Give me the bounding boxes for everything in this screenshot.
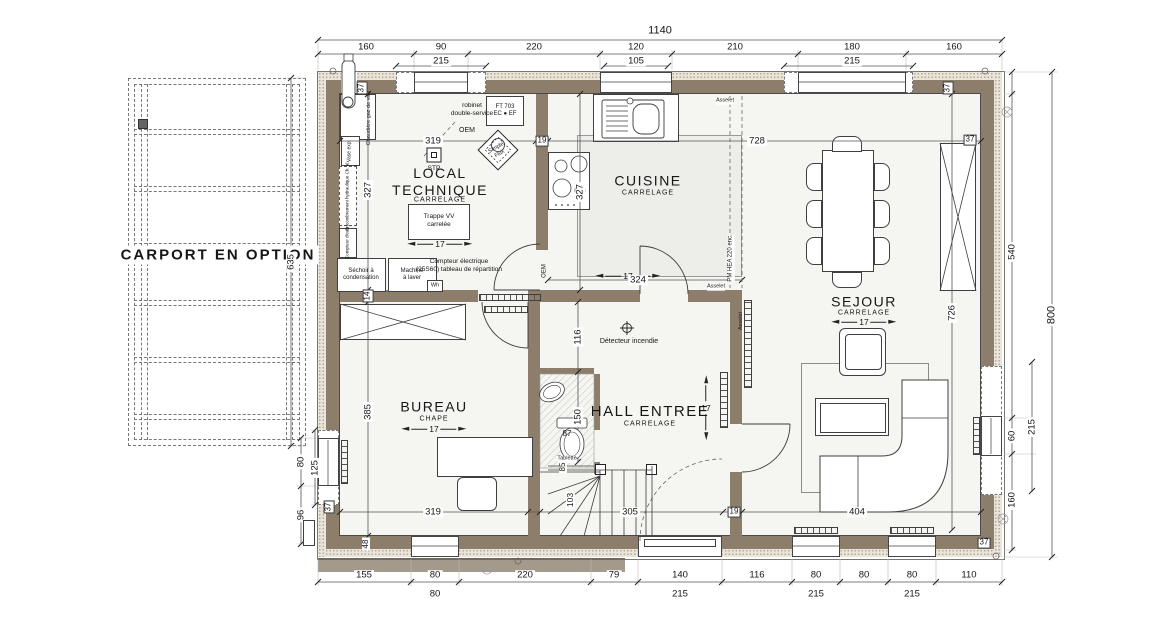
dining-chair — [832, 272, 862, 288]
arrow-left-icon — [407, 242, 415, 246]
room-finish-hall: CARRELAGE — [624, 421, 676, 428]
carport-beam — [134, 300, 300, 306]
dim-wall-37: 37 — [964, 135, 977, 146]
room-label-cuisine: CUISINE — [614, 173, 681, 190]
dim-top: 210 — [725, 42, 745, 52]
dim-interior: 103 — [566, 491, 575, 509]
dim-wall-37: 37 — [943, 82, 954, 95]
room-finish-bureau: CHAPE — [419, 416, 448, 423]
wardrobe — [340, 304, 466, 340]
dim-top: 220 — [524, 42, 544, 52]
dining-chair — [806, 237, 822, 265]
floor-plan: LOCAL TECHNIQUE CARRELAGE CUISINE CARREL… — [0, 0, 1160, 635]
room-finish-sejour: CARRELAGE — [838, 310, 890, 317]
window-right-sejour — [981, 416, 1002, 456]
kitchen-counter — [593, 94, 679, 142]
dim-top: 180 — [842, 42, 862, 52]
dim-interior: 404 — [847, 507, 867, 517]
arrow-right-icon — [653, 274, 661, 278]
dim-bottom: 220 — [515, 570, 535, 580]
arrow-left-icon — [704, 375, 708, 383]
dim-wall-37: 37 — [357, 82, 368, 95]
label-sechoir: Séchoir à condensation — [343, 268, 379, 282]
dim-interior: 87 — [561, 430, 574, 438]
window-left-bureau — [318, 438, 339, 486]
room-label-sejour: SEJOUR — [831, 294, 897, 311]
dim-wall-37: 37 — [978, 538, 991, 549]
armchair-inner — [845, 334, 882, 370]
dim-bottom: 80 — [857, 570, 872, 580]
radiator-sejour-wall — [744, 300, 752, 388]
label-oem-1: OEM — [459, 127, 475, 135]
window-bottom-2 — [888, 536, 936, 557]
dim-right-total: 800 — [1047, 304, 1058, 326]
dim-right: 215 — [1027, 417, 1037, 437]
room-label-bureau: BUREAU — [400, 399, 467, 416]
dim-top: 90 — [434, 42, 449, 52]
dim-bottom: 116 — [747, 570, 766, 580]
dim-interior: 319 — [423, 507, 443, 517]
dining-chair — [874, 200, 890, 228]
radiator-hall-wall — [720, 372, 728, 428]
level-marker-sejour: 17 — [831, 318, 896, 327]
kitchen-zone — [577, 135, 742, 277]
stair-post — [595, 464, 606, 475]
arrow-right-icon — [465, 242, 473, 246]
dim-interior: 305 — [620, 507, 640, 517]
dim-bottom-lintel: 215 — [670, 589, 690, 599]
dim-bottom-lintel: 215 — [902, 589, 922, 599]
stair-post — [646, 464, 657, 475]
dim-total-width: 1140 — [646, 26, 674, 37]
window-top-1 — [414, 72, 468, 93]
wall-local-cuisine — [536, 94, 548, 250]
wall-mid-2 — [528, 290, 640, 302]
label-robinet: robinet double-service — [451, 102, 493, 118]
dim-left: 80 — [296, 455, 306, 470]
dim-bottom: 155 — [354, 570, 374, 580]
dim-interior: 728 — [747, 136, 767, 146]
dim-interior: 324 — [628, 275, 648, 285]
dim-top: 120 — [626, 42, 646, 52]
dim-top-lintel: 215 — [842, 56, 862, 66]
radiator-local — [479, 294, 541, 301]
level-value: 17 — [429, 425, 438, 434]
carport-beam — [134, 414, 300, 420]
window-top-sejour — [798, 72, 906, 93]
dim-right: 160 — [1007, 490, 1017, 510]
dining-chair — [832, 136, 862, 152]
dim-bottom: 80 — [809, 570, 824, 580]
wall-mid-3 — [688, 290, 742, 302]
dim-carport-height: 635 — [286, 252, 296, 272]
dim-interior: 150 — [573, 407, 583, 427]
room-finish-local: CARRELAGE — [414, 197, 466, 204]
dim-interior: 327 — [363, 180, 373, 200]
dim-top: 160 — [944, 42, 964, 52]
window-top-kitchen — [600, 72, 672, 93]
label-trappe: Trappe VV carrelée — [424, 213, 455, 229]
level-marker-hall: 17 — [702, 375, 711, 440]
arrow-left-icon — [401, 427, 409, 431]
exterior-tag-box — [303, 520, 315, 546]
radiator-sejour-window — [973, 417, 980, 455]
wall-hall-sejour-b — [730, 472, 742, 536]
dim-bottom: 110 — [959, 570, 978, 580]
dim-left: 48 — [362, 538, 370, 551]
radiator-window-b2 — [890, 527, 934, 534]
level-value: 17 — [859, 318, 868, 327]
dining-chair — [806, 163, 822, 191]
dim-wall-37: 37 — [324, 501, 335, 514]
dim-bottom: 80 — [905, 570, 920, 580]
desk-chair — [457, 477, 497, 511]
dim-bottom-lintel: 80 — [428, 589, 443, 599]
chimney-box — [940, 143, 976, 291]
dining-table — [822, 150, 874, 272]
dim-bottom: 79 — [607, 570, 622, 580]
wall-bureau-hall — [528, 302, 540, 536]
label-compteur-eau: Compteur d'eau — [346, 227, 351, 259]
label-pm-hea: PM HEA 220 enc. — [728, 234, 735, 281]
dim-wall-14: 14 — [363, 290, 374, 303]
entrance-door-leaf — [644, 539, 716, 547]
level-value: 17 — [435, 240, 444, 249]
dim-right: 540 — [1007, 242, 1017, 262]
level-marker-bureau: 17 — [401, 425, 466, 434]
label-ft703: FT 703 EC ● EF — [494, 104, 517, 118]
dim-interior: 327 — [575, 182, 585, 202]
coffee-table-inner — [820, 403, 886, 433]
carport-beam — [134, 129, 300, 135]
dim-left: 125 — [310, 458, 320, 478]
label-chaudiere: Chaudière gaz de ville — [366, 91, 372, 145]
dim-top-lintel: 105 — [626, 56, 646, 66]
label-oem-2: OEM — [542, 264, 549, 278]
level-marker-local: 17 — [407, 240, 472, 249]
carport-beam — [134, 357, 300, 363]
wall-wc-top — [540, 368, 594, 374]
dim-sejour-height: 726 — [947, 303, 957, 323]
window-bottom-1 — [792, 536, 840, 557]
radiator-bureau — [484, 306, 528, 313]
dim-bottom-lintel: 215 — [806, 589, 826, 599]
dim-wall-19: 19 — [536, 136, 549, 147]
wall-wc-right-a — [594, 374, 600, 430]
door-bottom-bureau — [411, 536, 459, 557]
dim-top-lintel: 215 — [431, 56, 451, 66]
radiator-window-b1 — [794, 527, 838, 534]
dining-chair — [874, 237, 890, 265]
flue-opening — [341, 72, 357, 93]
dim-right: 60 — [1007, 429, 1017, 444]
dim-bottom: 140 — [670, 570, 690, 580]
dim-top: 160 — [356, 42, 376, 52]
label-asselet-top: Asselet — [716, 98, 734, 105]
label-asselet-vert: Asselet — [738, 312, 744, 330]
arrow-right-icon — [704, 433, 708, 441]
room-label-hall-entree: HALL ENTREE — [591, 403, 709, 421]
dim-interior: 385 — [363, 402, 373, 422]
arrow-right-icon — [459, 427, 467, 431]
label-stp: STP — [428, 165, 441, 173]
label-encombrement: Encombrement hydraulique Ch. al. — [346, 161, 351, 230]
dim-interior: 319 — [423, 136, 443, 146]
dining-chair — [806, 200, 822, 228]
arrow-left-icon — [831, 320, 839, 324]
label-wh: Wh — [431, 283, 439, 290]
dim-interior: 85 — [559, 461, 567, 474]
dim-wall-19: 19 — [728, 507, 741, 518]
room-finish-cuisine: CARRELAGE — [622, 190, 674, 197]
carport-beam — [134, 186, 300, 192]
label-asselet-mid: Asselet — [707, 284, 725, 291]
dining-chair — [874, 163, 890, 191]
desk — [437, 437, 533, 477]
radiator-bureau-window — [341, 440, 348, 484]
dim-interior: 116 — [573, 327, 583, 346]
level-value: 17 — [701, 404, 710, 413]
dim-bottom: 80 — [428, 570, 443, 580]
label-vase: Vase exp. — [347, 140, 353, 162]
arrow-right-icon — [889, 320, 897, 324]
arrow-left-icon — [595, 274, 603, 278]
label-detecteur: Détecteur incendie — [600, 338, 658, 346]
carport-post — [138, 119, 148, 129]
label-compteur-elec: Compteur électrique (25S60) tableau de r… — [416, 258, 502, 274]
